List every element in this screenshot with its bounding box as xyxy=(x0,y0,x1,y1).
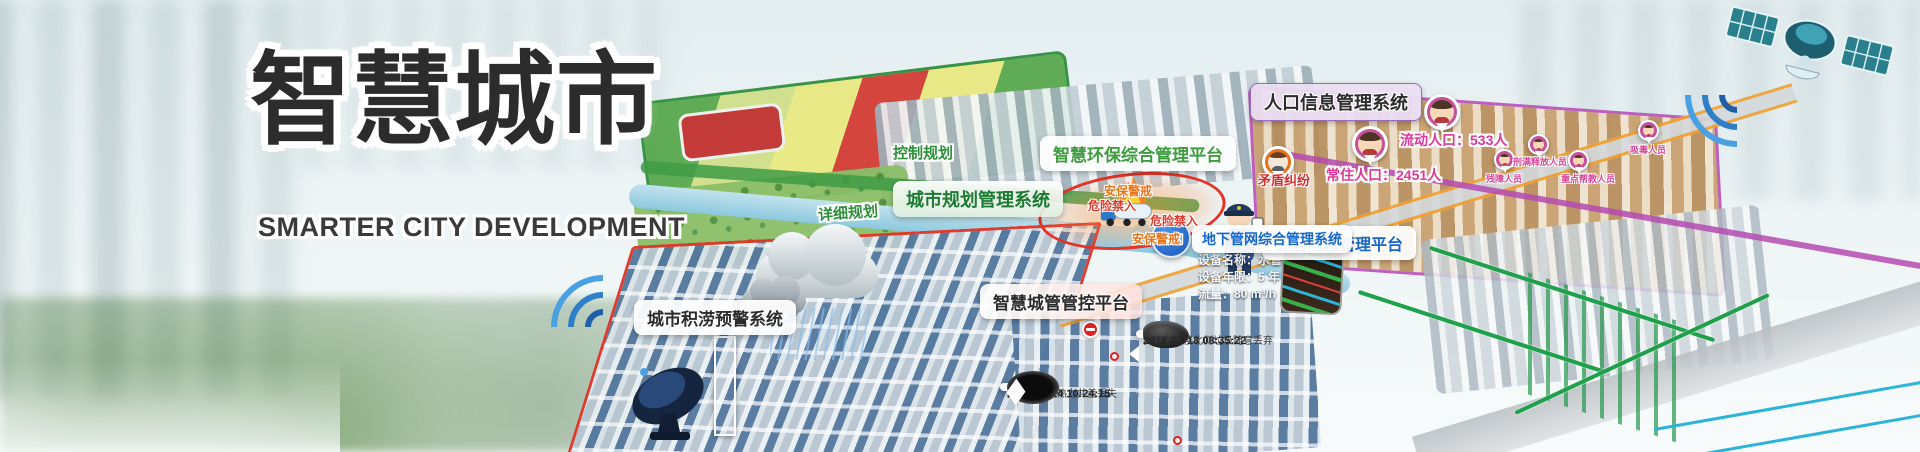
danger-label-right: 危险禁入 xyxy=(1150,212,1198,229)
person-face-icon xyxy=(1573,155,1584,166)
manhole-photo xyxy=(1007,371,1059,404)
event-desc: 安南名医楼北侧垃圾随意丢弃 xyxy=(1143,334,1273,349)
banner-subtitle: SMARTER CITY DEVELOPMENT xyxy=(258,212,685,243)
danger-label-left: 危险禁入 xyxy=(1088,197,1136,214)
person-pin-disabled xyxy=(1494,149,1515,170)
radar-dish-icon xyxy=(622,356,714,444)
banner-title: 智慧城市 xyxy=(250,38,658,164)
no-entry-sign xyxy=(1082,321,1099,338)
pin-label-drug: 吸毒人员 xyxy=(1630,143,1666,156)
pin-label-key-aid: 重点帮教人员 xyxy=(1561,172,1615,185)
system-label-population[interactable]: 人口信息管理系统 xyxy=(1250,83,1422,121)
pin-label-disabled: 残障人员 xyxy=(1486,172,1522,185)
person-face-icon xyxy=(1533,139,1544,150)
dispute-icon xyxy=(1268,152,1288,172)
person-pin-key-aid xyxy=(1568,150,1589,171)
detail-plan-label: 详细规划 xyxy=(817,200,878,225)
system-label-flood-warning[interactable]: 城市积涝预警系统 xyxy=(634,300,796,335)
control-plan-label: 控制规划 xyxy=(893,142,953,163)
person-pin-released xyxy=(1528,134,1549,155)
stadium xyxy=(677,102,786,162)
system-label-planning[interactable]: 城市规划管理系统 xyxy=(893,181,1063,217)
smart-city-banner: 管网 设备名称：水管 设备年限：5 年 流量：80 m³/h 控制规划 详细规划… xyxy=(0,0,1920,452)
pipe-flow-rate: 流量：80 m³/h xyxy=(1198,286,1282,303)
system-label-pipe-network[interactable]: 地下管网综合管理系统 xyxy=(1192,225,1352,253)
system-label-environment[interactable]: 智慧环保综合管理平台 xyxy=(1040,136,1236,171)
event-callout-manhole: 2016-09-14 10:24:15 安干路中段热力井盖丢失 xyxy=(1000,383,1014,391)
fog-overlay xyxy=(0,360,340,452)
person-face-icon xyxy=(1643,125,1654,136)
person-face-icon xyxy=(1358,132,1382,156)
pin-label-released: 刑满释放人员 xyxy=(1513,155,1567,168)
event-marker xyxy=(1173,436,1182,445)
floating-population-label: 流动人口：533人 xyxy=(1400,130,1507,150)
event-marker xyxy=(1110,352,1119,361)
pipe-device-age: 设备年限：5 年 xyxy=(1198,269,1282,286)
system-label-city-management[interactable]: 智慧城管管控平台 xyxy=(980,284,1142,319)
flood-warning-text: 城市积涝预警系统 xyxy=(647,305,783,330)
person-face-icon xyxy=(1499,154,1510,165)
dispute-label: 矛盾纠纷 xyxy=(1258,170,1310,189)
person-face-icon xyxy=(1430,100,1454,124)
security-cordon-label-bottom: 安保警戒 xyxy=(1132,230,1180,247)
floating-population-pin xyxy=(1424,94,1460,130)
event-callout-garbage: 2016-09-18 08:35:22 安南名医楼北侧垃圾随意丢弃 xyxy=(1136,330,1150,338)
flood-legend xyxy=(714,336,736,436)
resident-population-pin xyxy=(1352,126,1388,162)
resident-population-label: 常住人口：2451人 xyxy=(1326,165,1441,185)
person-pin-drug xyxy=(1638,120,1659,141)
